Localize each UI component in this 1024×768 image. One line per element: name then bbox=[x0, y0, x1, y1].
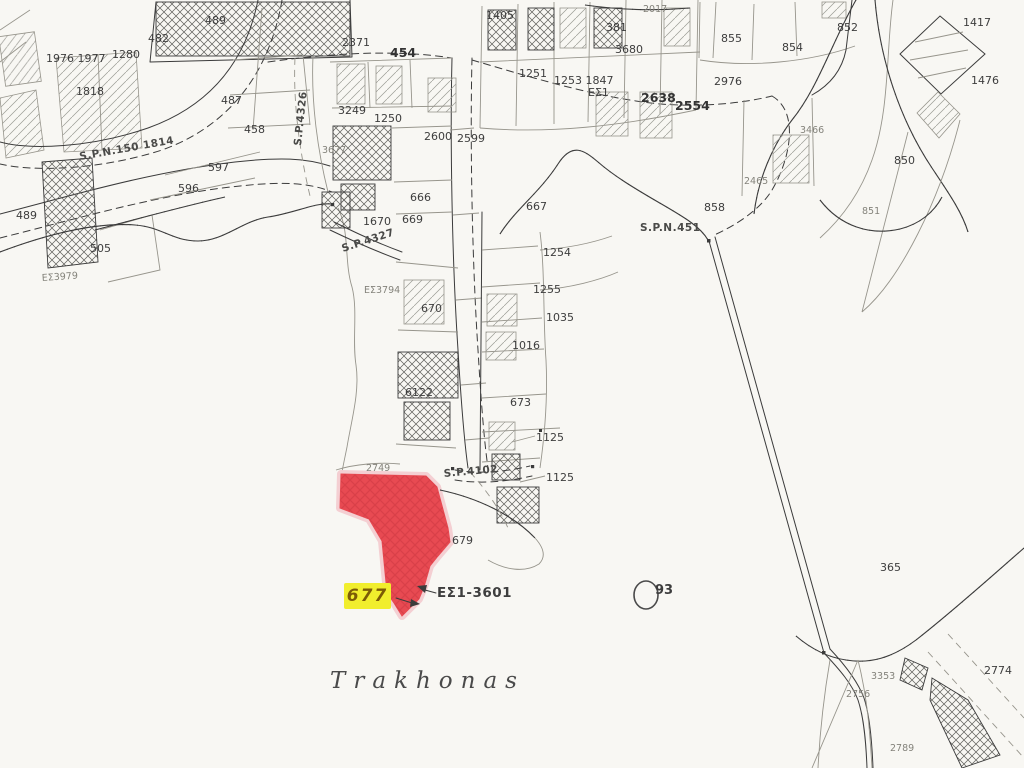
plot-number-label: 489 bbox=[205, 14, 226, 27]
plot-number-label: ΕΣ3794 bbox=[364, 285, 400, 296]
plot-number-label: 667 bbox=[526, 200, 547, 213]
plot-number-label: 3680 bbox=[615, 43, 643, 56]
place-name-trakhonas: Trakhonas bbox=[330, 668, 525, 694]
cadastral-map-canvas: 48948212801976 19771818487458S.P.N.150 1… bbox=[0, 0, 1024, 768]
plot-number-label: 670 bbox=[421, 302, 442, 315]
plot-number-label: 1125 bbox=[536, 431, 564, 444]
plot-number-label: 673 bbox=[510, 396, 531, 409]
plot-number-label: S.P.4327 bbox=[340, 227, 396, 255]
plot-number-label: 3677 bbox=[322, 145, 346, 156]
plot-number-label: ΕΣ3979 bbox=[41, 270, 78, 283]
plot-number-label: 1417 bbox=[963, 16, 991, 29]
plot-number-label: ΕΣ1 bbox=[588, 86, 609, 99]
plot-number-label: 1250 bbox=[374, 112, 402, 125]
plot-number-label: 365 bbox=[880, 561, 901, 574]
survey-reference-label: ΕΣ1-3601 bbox=[437, 585, 512, 601]
plot-number-label: 854 bbox=[782, 41, 803, 54]
plot-number-label: 454 bbox=[390, 45, 416, 60]
plot-number-label: 1016 bbox=[512, 339, 540, 352]
plot-number-label: 505 bbox=[90, 242, 111, 255]
plot-number-label: 2554 bbox=[675, 98, 710, 113]
plot-number-label: 3466 bbox=[800, 125, 824, 136]
plot-number-label: 852 bbox=[837, 21, 858, 34]
plot-number-label: 482 bbox=[148, 32, 169, 45]
plot-number-label: 1405 bbox=[486, 9, 514, 22]
plot-number-label: 2600 bbox=[424, 130, 452, 143]
plot-number-label: 2599 bbox=[457, 132, 485, 145]
plot-number-label: 858 bbox=[704, 201, 725, 214]
plot-number-label: 2465 bbox=[744, 176, 768, 187]
plot-number-label: 458 bbox=[244, 123, 265, 136]
plot-number-label: 2789 bbox=[890, 743, 914, 754]
plot-number-label: 2638 bbox=[641, 90, 676, 105]
plot-number-label: 2017 bbox=[643, 4, 667, 15]
plot-number-label: 487 bbox=[221, 94, 242, 107]
plot-number-label: 2976 bbox=[714, 75, 742, 88]
highlight-plot-number: 677 bbox=[347, 586, 389, 606]
plot-number-label: 489 bbox=[16, 209, 37, 222]
plot-number-label: 1035 bbox=[546, 311, 574, 324]
plot-number-label: 1125 bbox=[546, 471, 574, 484]
plot-number-label: S.P.N.451 bbox=[640, 222, 701, 234]
plot-number-label: 851 bbox=[862, 206, 880, 217]
bottomright-features bbox=[796, 548, 1024, 768]
topright-parcels bbox=[699, 0, 985, 312]
highlight-plot-tag[interactable]: 677 bbox=[344, 583, 391, 609]
plot-number-label: 669 bbox=[402, 213, 423, 226]
plot-number-label: 855 bbox=[721, 32, 742, 45]
plot-number-label: 3353 bbox=[871, 671, 895, 682]
plot-number-label: 1254 bbox=[543, 246, 571, 259]
plot-number-label: 1670 bbox=[363, 215, 391, 228]
plot-number-label: 850 bbox=[894, 154, 915, 167]
plot-number-label: 666 bbox=[410, 191, 431, 204]
plot-number-label: 2756 bbox=[846, 689, 870, 700]
plot-number-label: 1255 bbox=[533, 283, 561, 296]
coast-and-track bbox=[500, 150, 873, 768]
plot-number-label: 6122 bbox=[405, 386, 433, 399]
plot-number-label: 1476 bbox=[971, 74, 999, 87]
plot-number-label: 597 bbox=[208, 161, 229, 174]
plot-number-label: 2371 bbox=[342, 36, 370, 49]
plot-number-label: 596 bbox=[178, 182, 199, 195]
plot-number-label: 1818 bbox=[76, 85, 104, 98]
plot-number-label: 1976 1977 bbox=[46, 52, 106, 65]
plot-number-label: 1280 bbox=[112, 48, 140, 61]
plot-number-label: 3249 bbox=[338, 104, 366, 117]
plot-number-label: 1251 bbox=[519, 67, 547, 80]
plot-number-label: 2774 bbox=[984, 664, 1012, 677]
plot-number-labels: 48948212801976 19771818487458S.P.N.150 1… bbox=[16, 4, 1012, 754]
circle-93-number: 93 bbox=[655, 583, 673, 598]
plot-number-label: S.P.4326 bbox=[292, 91, 310, 146]
plot-number-label: 2749 bbox=[366, 463, 390, 474]
plot-number-label: 679 bbox=[452, 534, 473, 547]
plot-number-label: 381 bbox=[606, 21, 627, 34]
map-linework: 48948212801976 19771818487458S.P.N.150 1… bbox=[0, 0, 1024, 768]
plot-number-label: S.P.4102 bbox=[443, 463, 498, 480]
